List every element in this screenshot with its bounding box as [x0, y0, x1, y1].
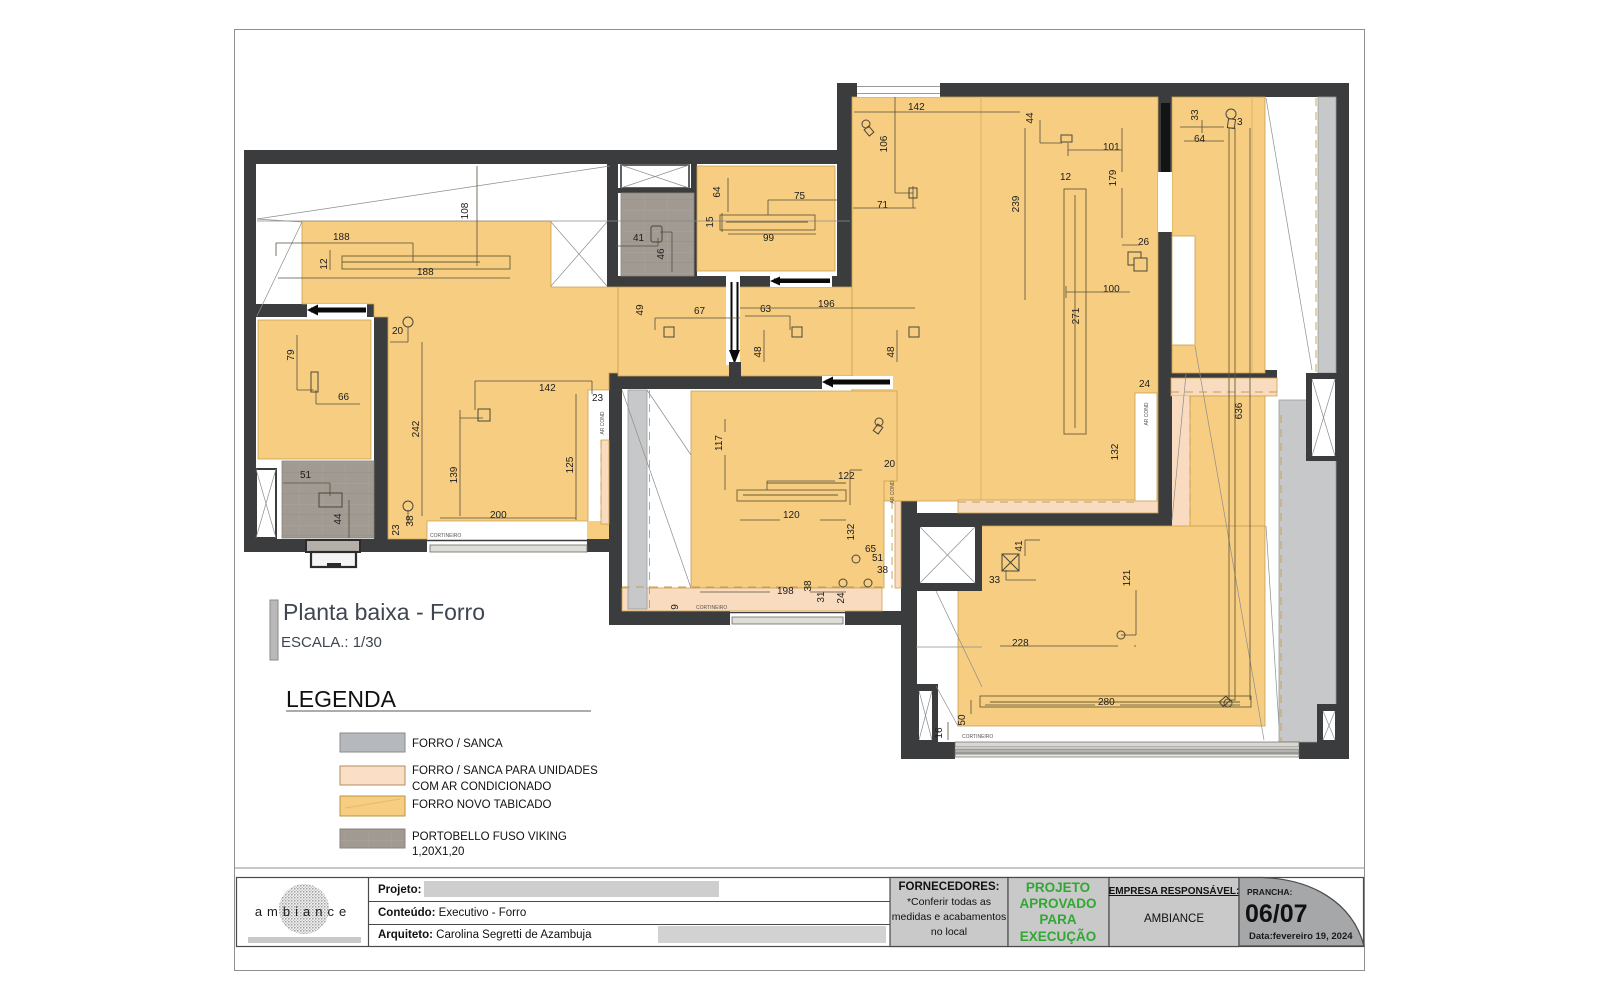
- svg-text:179: 179: [1108, 169, 1119, 186]
- svg-text:51: 51: [872, 553, 884, 564]
- svg-text:26: 26: [1138, 237, 1150, 248]
- svg-text:Planta baixa - Forro: Planta baixa - Forro: [283, 599, 485, 625]
- svg-text:EMPRESA RESPONSÁVEL:: EMPRESA RESPONSÁVEL:: [1109, 884, 1240, 897]
- svg-text:41: 41: [633, 233, 645, 244]
- svg-text:50: 50: [957, 714, 968, 726]
- svg-text:APROVADO: APROVADO: [1019, 896, 1096, 911]
- svg-text:125: 125: [565, 456, 576, 473]
- svg-text:66: 66: [338, 392, 350, 403]
- svg-text:3: 3: [1237, 117, 1243, 128]
- svg-text:FORRO NOVO TABICADO: FORRO NOVO TABICADO: [412, 799, 552, 811]
- svg-text:15: 15: [705, 216, 716, 228]
- svg-text:48: 48: [886, 346, 897, 358]
- svg-text:no local: no local: [931, 926, 967, 938]
- svg-text:108: 108: [460, 202, 471, 219]
- svg-text:EXECUÇÃO: EXECUÇÃO: [1020, 929, 1097, 944]
- svg-text:117: 117: [714, 435, 725, 451]
- svg-text:44: 44: [1025, 112, 1036, 124]
- svg-text:20: 20: [392, 326, 404, 337]
- svg-text:PORTOBELLO FUSO VIKING: PORTOBELLO FUSO VIKING: [412, 831, 567, 843]
- svg-text:PARA: PARA: [1039, 912, 1077, 927]
- svg-text:106: 106: [879, 135, 890, 152]
- svg-text:Conteúdo: Executivo - Forro: Conteúdo: Executivo - Forro: [378, 907, 526, 919]
- svg-text:23: 23: [592, 393, 604, 404]
- svg-text:1,20X1,20: 1,20X1,20: [412, 846, 464, 858]
- svg-text:20: 20: [884, 459, 896, 470]
- svg-text:142: 142: [908, 102, 925, 113]
- svg-text:ambiance: ambiance: [255, 904, 351, 919]
- svg-text:200: 200: [490, 510, 507, 521]
- svg-text:132: 132: [846, 523, 857, 540]
- svg-text:188: 188: [417, 267, 434, 278]
- svg-text:121: 121: [1122, 569, 1133, 586]
- svg-text:101: 101: [1103, 142, 1120, 153]
- svg-text:41: 41: [1014, 540, 1025, 552]
- svg-text:AR COND: AR COND: [600, 411, 606, 434]
- svg-text:9: 9: [670, 604, 681, 610]
- svg-text:46: 46: [656, 248, 667, 260]
- svg-text:CORTINEIRO: CORTINEIRO: [430, 533, 461, 539]
- svg-text:FORRO / SANCA: FORRO / SANCA: [412, 738, 503, 750]
- svg-text:51: 51: [300, 470, 312, 481]
- svg-text:*Conferir todas as: *Conferir todas as: [907, 896, 991, 908]
- svg-text:228: 228: [1012, 638, 1029, 649]
- svg-text:38: 38: [803, 580, 814, 592]
- svg-text:100: 100: [1103, 284, 1120, 295]
- svg-text:139: 139: [449, 466, 460, 483]
- svg-text:12: 12: [1060, 172, 1072, 183]
- svg-text:33: 33: [989, 575, 1001, 586]
- svg-text:122: 122: [838, 471, 855, 482]
- svg-text:71: 71: [877, 200, 889, 211]
- svg-text:48: 48: [753, 346, 764, 358]
- svg-text:49: 49: [635, 304, 646, 316]
- svg-text:242: 242: [411, 420, 422, 437]
- svg-text:FORRO / SANCA PARA UNIDADES: FORRO / SANCA PARA UNIDADES: [412, 765, 598, 777]
- svg-text:198: 198: [777, 586, 794, 597]
- svg-text:142: 142: [539, 383, 556, 394]
- svg-text:271: 271: [1071, 307, 1082, 324]
- svg-text:280: 280: [1098, 697, 1115, 708]
- svg-text:FORNECEDORES:: FORNECEDORES:: [899, 881, 1000, 893]
- svg-text:16: 16: [934, 727, 945, 739]
- svg-text:AR COND: AR COND: [1144, 402, 1150, 425]
- svg-text:AMBIANCE: AMBIANCE: [1144, 913, 1204, 925]
- svg-text:AR COND: AR COND: [890, 480, 896, 503]
- svg-text:Projeto:: Projeto:: [378, 884, 421, 896]
- svg-text:44: 44: [333, 513, 344, 525]
- svg-text:12: 12: [319, 258, 330, 270]
- svg-text:COM AR CONDICIONADO: COM AR CONDICIONADO: [412, 781, 551, 793]
- svg-text:63: 63: [760, 304, 772, 315]
- svg-text:Arquiteto: Carolina Segretti d: Arquiteto: Carolina Segretti de Azambuja: [378, 929, 592, 941]
- svg-text:24: 24: [1139, 379, 1151, 390]
- svg-text:188: 188: [333, 232, 350, 243]
- svg-text:23: 23: [391, 524, 402, 536]
- svg-text:79: 79: [286, 349, 297, 361]
- svg-text:ESCALA.: 1/30: ESCALA.: 1/30: [281, 634, 382, 651]
- svg-text:33: 33: [1190, 109, 1201, 121]
- svg-text:64: 64: [712, 186, 723, 198]
- svg-text:Data:fevereiro 19, 2024: Data:fevereiro 19, 2024: [1249, 931, 1353, 942]
- svg-text:medidas e acabamentos: medidas e acabamentos: [892, 911, 1006, 923]
- svg-text:24: 24: [836, 592, 847, 604]
- svg-text:64: 64: [1194, 134, 1206, 145]
- svg-text:PROJETO: PROJETO: [1026, 880, 1090, 895]
- svg-text:99: 99: [763, 233, 775, 244]
- svg-text:31: 31: [816, 591, 827, 603]
- svg-text:239: 239: [1011, 195, 1022, 212]
- svg-text:67: 67: [694, 306, 706, 317]
- svg-text:636: 636: [1234, 402, 1245, 419]
- svg-text:132: 132: [1110, 443, 1121, 460]
- svg-text:120: 120: [783, 510, 800, 521]
- svg-text:38: 38: [405, 515, 416, 527]
- svg-text:CORTINEIRO: CORTINEIRO: [962, 734, 993, 740]
- svg-text:06/07: 06/07: [1245, 900, 1308, 928]
- svg-text:38: 38: [877, 565, 889, 576]
- svg-text:CORTINEIRO: CORTINEIRO: [696, 605, 727, 611]
- svg-text:LEGENDA: LEGENDA: [286, 686, 397, 712]
- svg-text:PRANCHA:: PRANCHA:: [1247, 887, 1293, 897]
